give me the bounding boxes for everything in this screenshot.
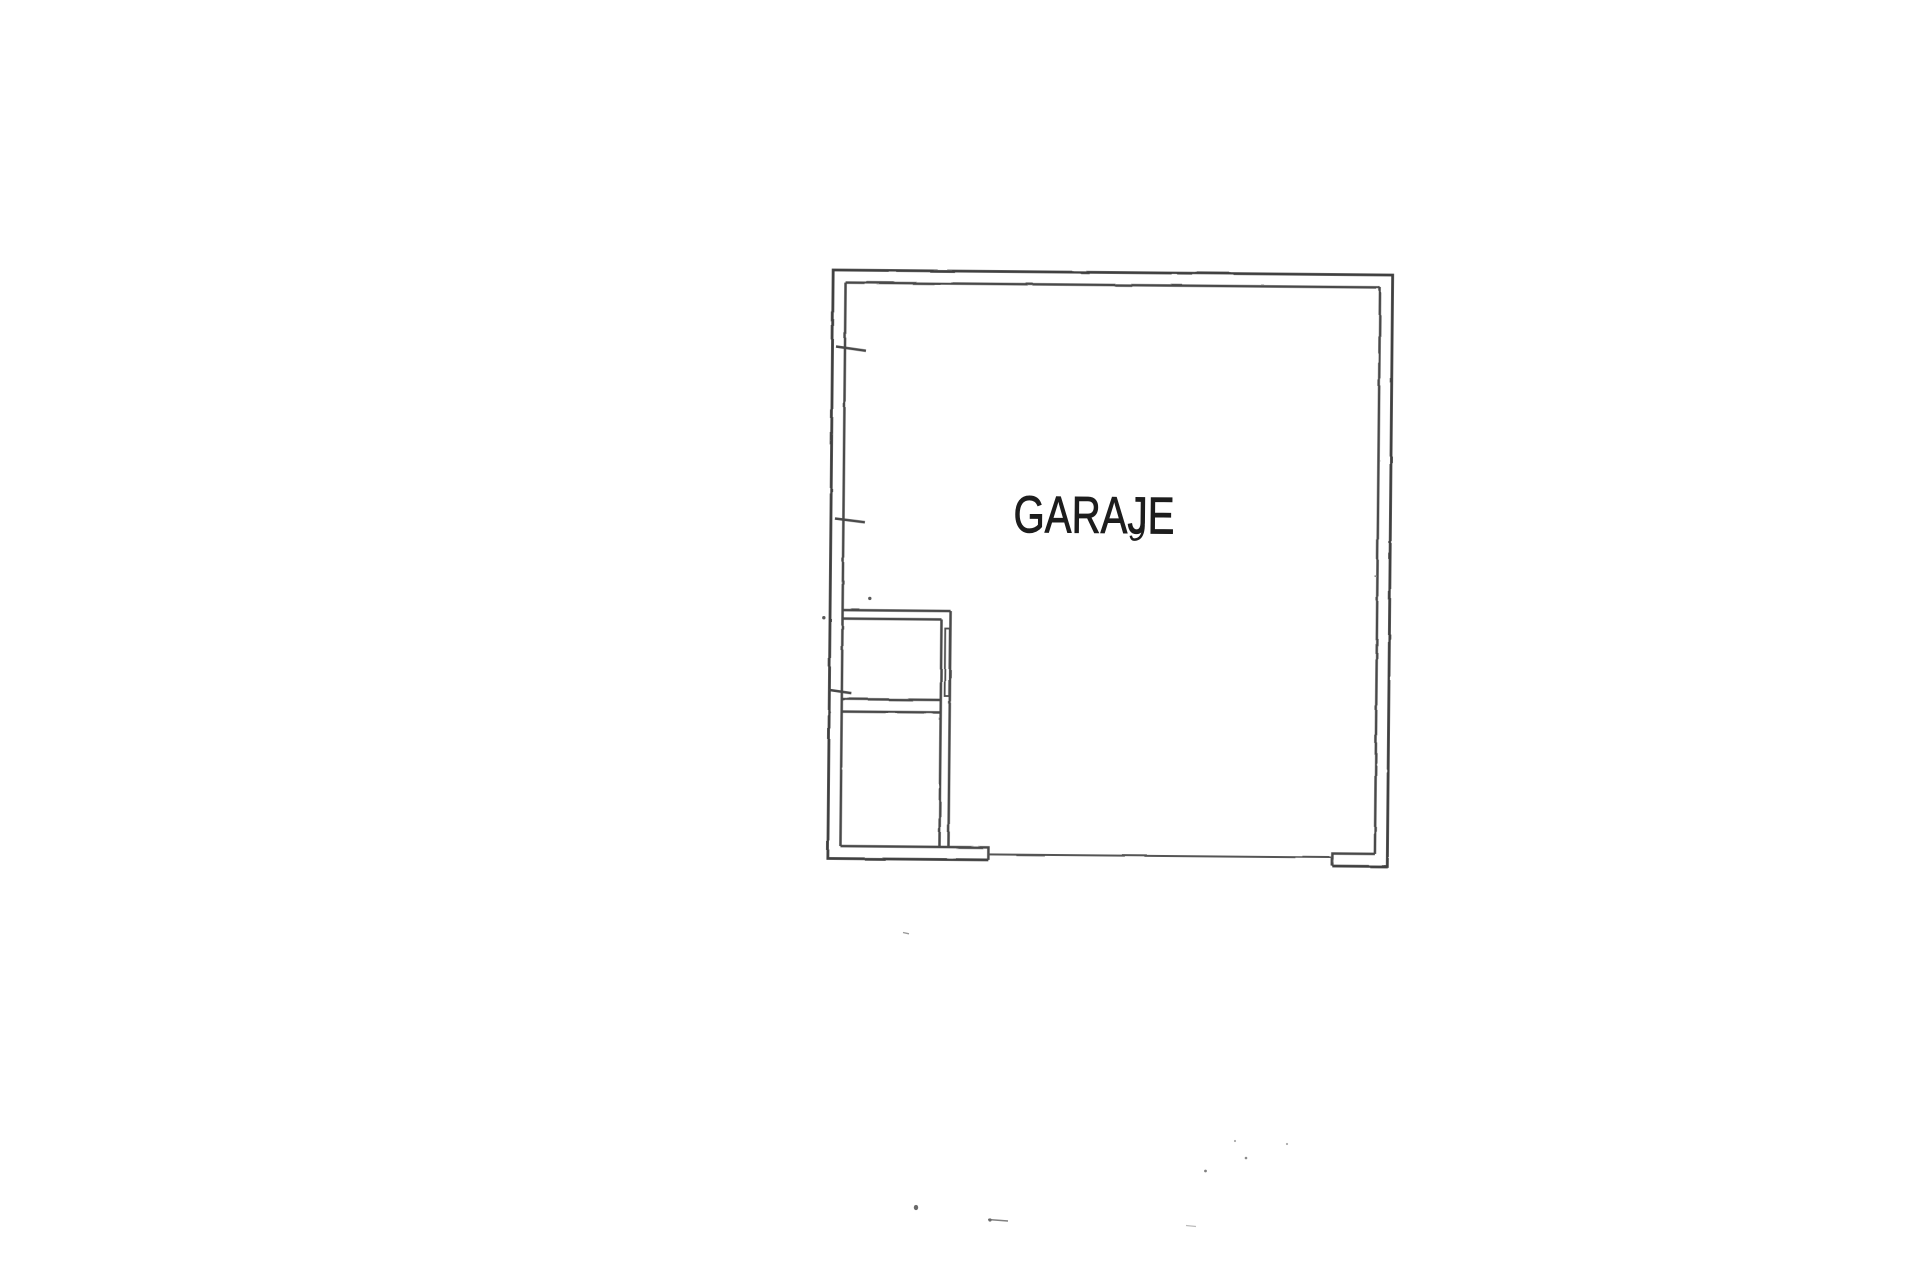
svg-text:GARAJE: GARAJE: [1013, 486, 1175, 545]
